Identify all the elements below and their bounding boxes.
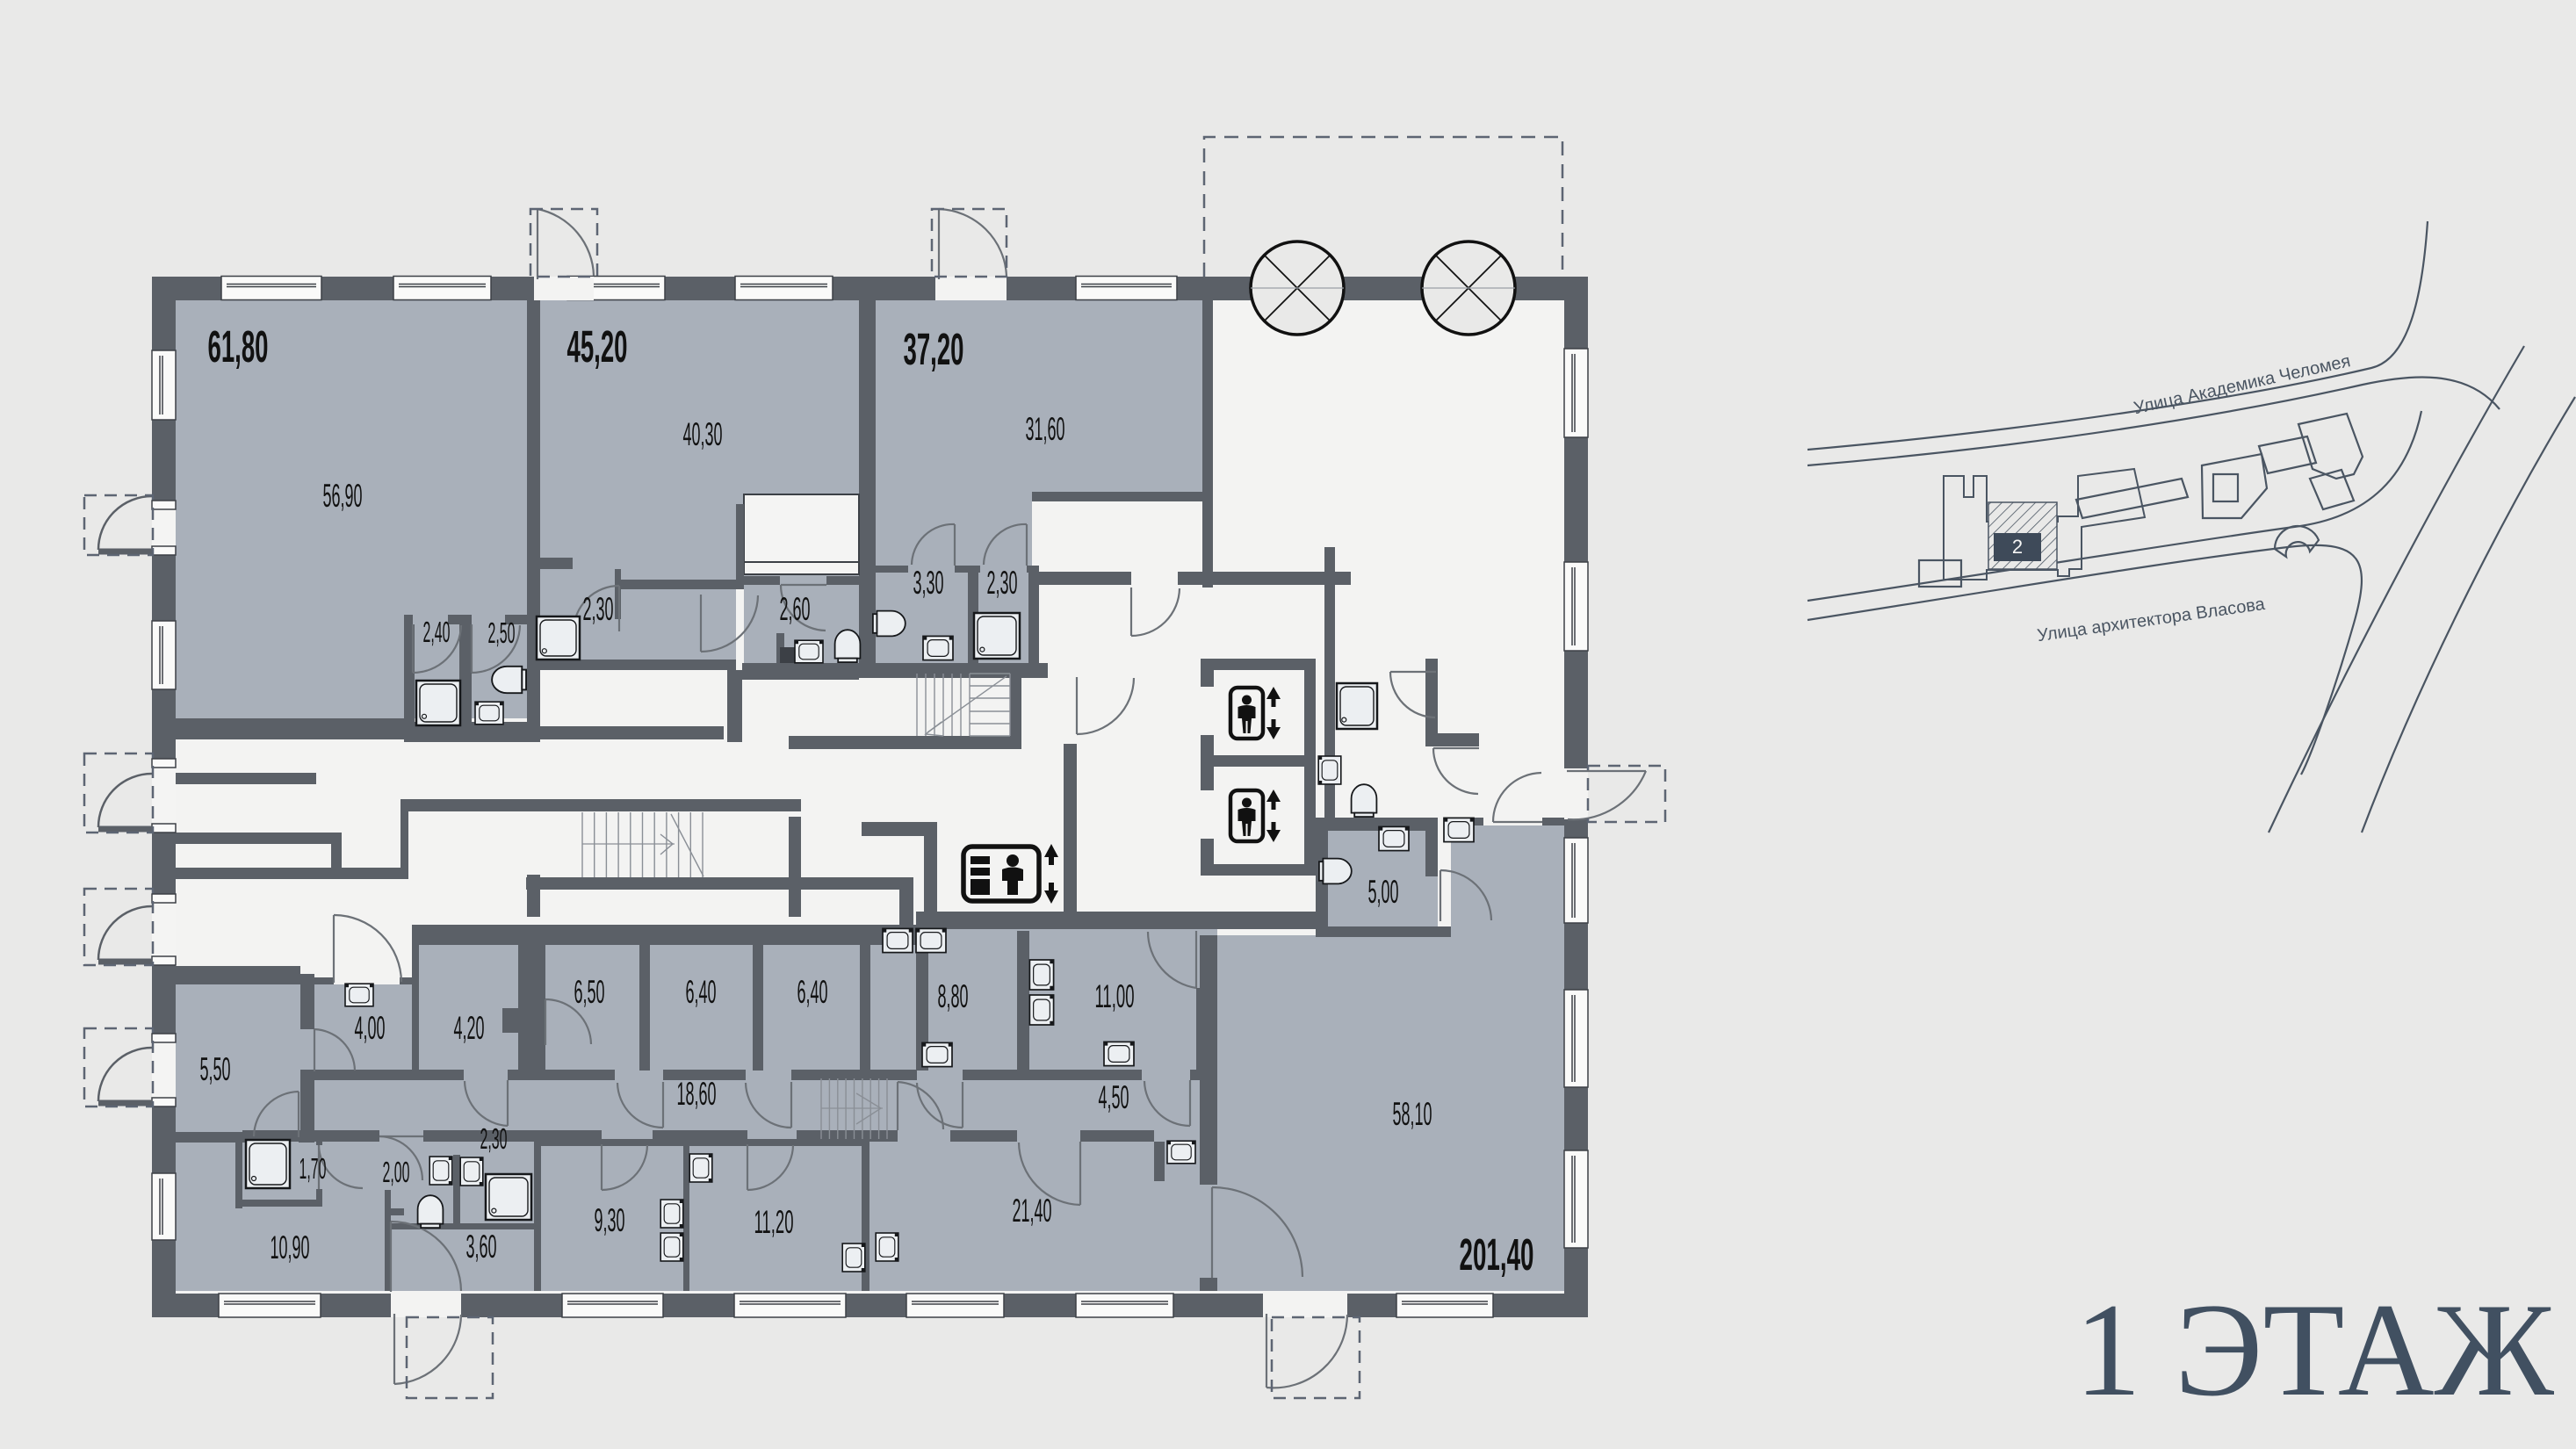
svg-text:3,30: 3,30 [913,565,944,601]
svg-text:5,50: 5,50 [200,1051,231,1087]
svg-text:2,50: 2,50 [488,616,516,649]
svg-text:3,60: 3,60 [466,1229,497,1265]
svg-text:31,60: 31,60 [1026,411,1065,447]
svg-text:2: 2 [2012,536,2023,558]
svg-text:10,90: 10,90 [271,1229,310,1265]
svg-text:21,40: 21,40 [1013,1193,1052,1229]
svg-text:4,50: 4,50 [1099,1079,1129,1115]
svg-text:9,30: 9,30 [595,1202,625,1238]
svg-text:6,40: 6,40 [686,974,717,1010]
svg-text:5,00: 5,00 [1368,874,1399,910]
svg-text:37,20: 37,20 [904,324,964,374]
svg-text:4,00: 4,00 [355,1010,386,1046]
svg-text:2,00: 2,00 [383,1156,410,1188]
svg-text:1 ЭТАЖ: 1 ЭТАЖ [2075,1276,2555,1424]
svg-text:2,30: 2,30 [987,565,1018,601]
svg-text:8,80: 8,80 [938,978,969,1014]
svg-text:2,30: 2,30 [480,1122,508,1155]
svg-text:2,40: 2,40 [423,616,451,648]
svg-text:6,50: 6,50 [574,974,605,1010]
svg-text:1,70: 1,70 [299,1152,327,1185]
svg-text:6,40: 6,40 [797,974,828,1010]
svg-text:40,30: 40,30 [683,416,723,452]
svg-text:58,10: 58,10 [1393,1096,1432,1132]
svg-text:11,20: 11,20 [754,1204,794,1240]
svg-text:2,30: 2,30 [583,591,614,627]
svg-text:2,60: 2,60 [780,591,811,627]
svg-text:4,20: 4,20 [454,1010,485,1046]
svg-text:201,40: 201,40 [1460,1229,1534,1280]
svg-text:45,20: 45,20 [567,321,628,371]
svg-text:18,60: 18,60 [677,1076,717,1112]
svg-text:56,90: 56,90 [323,478,363,514]
svg-text:61,80: 61,80 [208,321,269,371]
svg-text:11,00: 11,00 [1095,978,1135,1014]
